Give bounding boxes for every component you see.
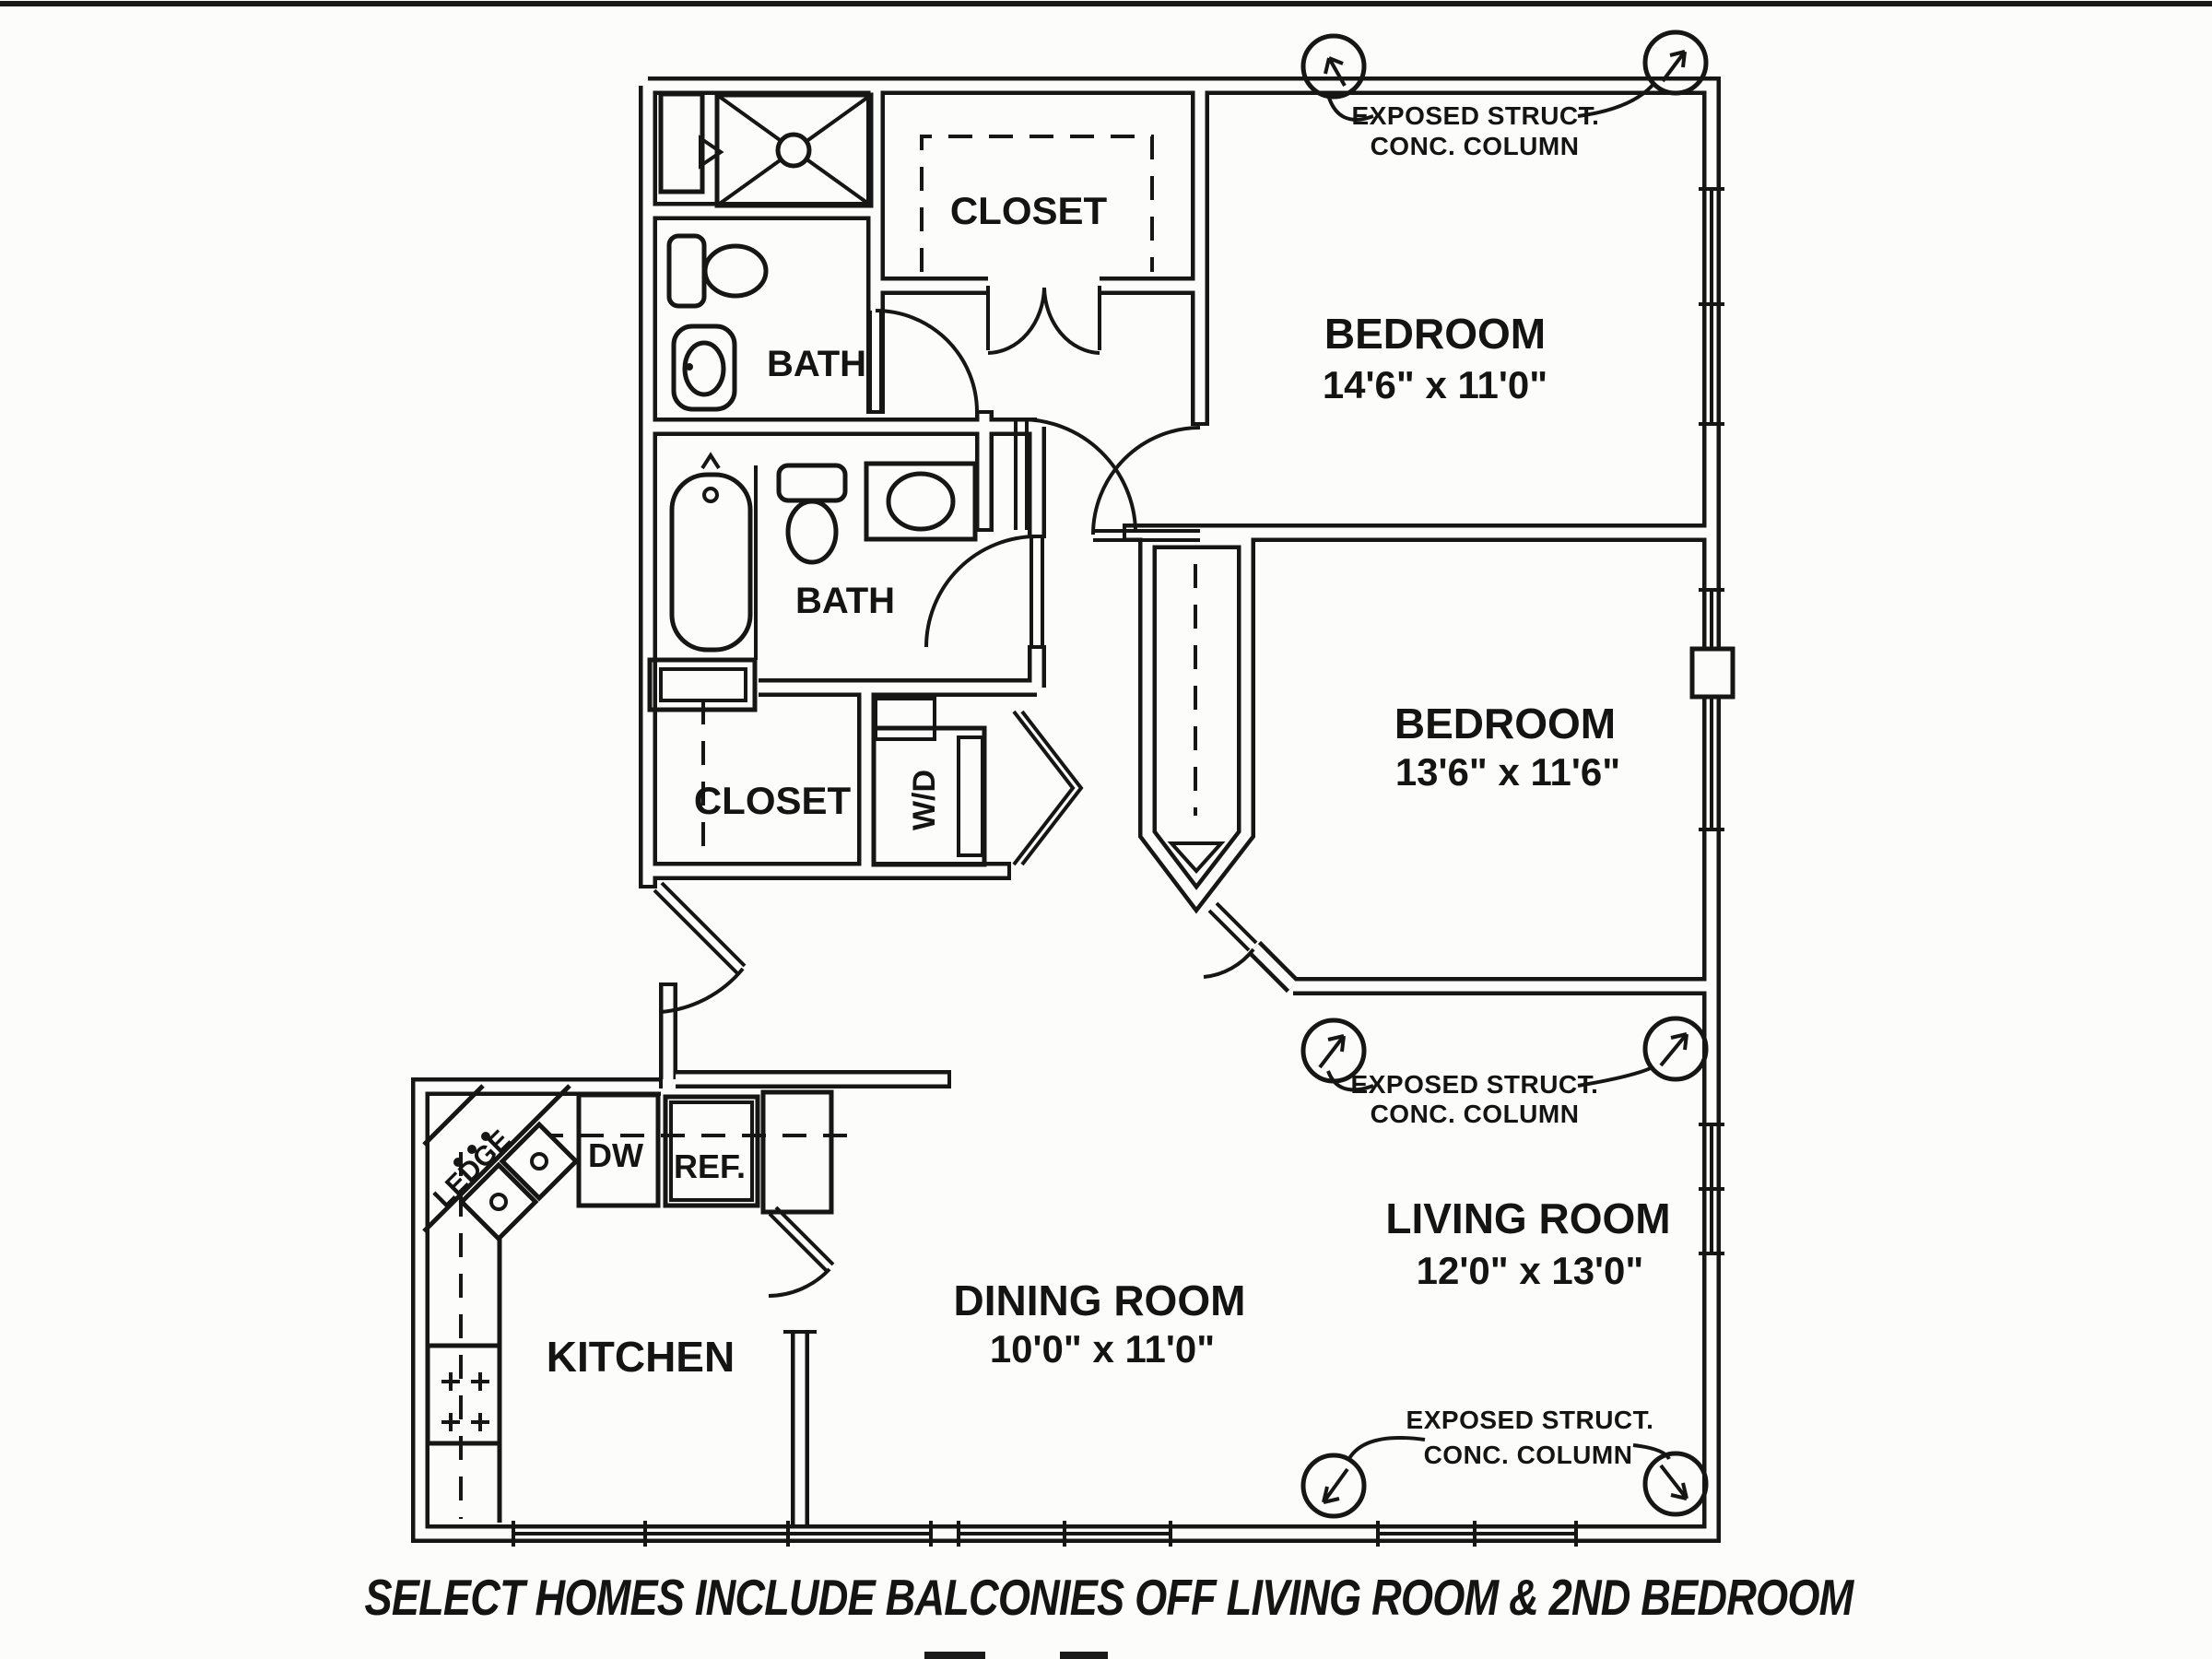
washer-dryer-label: W/D bbox=[907, 770, 942, 830]
closet-dashed-lines bbox=[703, 136, 1195, 865]
floorplan-drawing: EXPOSED STRUCT. CONC. COLUMN EXPOSED STR… bbox=[0, 0, 2212, 1659]
living-room-label: LIVING ROOM bbox=[1385, 1194, 1670, 1242]
toilet-upper-bath bbox=[669, 236, 766, 306]
floorplan-page: EXPOSED STRUCT. CONC. COLUMN EXPOSED STR… bbox=[0, 0, 2212, 1659]
column-note-bottom-line1: EXPOSED STRUCT. bbox=[1406, 1406, 1654, 1434]
lower-closet-label: CLOSET bbox=[694, 779, 852, 822]
sink-lower-bath bbox=[866, 464, 975, 539]
dining-room-label: DINING ROOM bbox=[954, 1277, 1246, 1324]
bedroom2-label: BEDROOM bbox=[1394, 700, 1616, 747]
plan-caption: SELECT HOMES INCLUDE BALCONIES OFF LIVIN… bbox=[365, 1569, 1855, 1626]
column-note-mid-line2: CONC. COLUMN bbox=[1371, 1100, 1580, 1128]
living-room-dims: 12'0" x 13'0" bbox=[1417, 1249, 1644, 1292]
sink-upper-bath bbox=[674, 326, 735, 409]
dishwasher-label: DW bbox=[588, 1136, 643, 1174]
refrigerator-label: REF. bbox=[674, 1147, 746, 1185]
room-labels: BEDROOM 14'6" x 11'0" BEDROOM 13'6" x 11… bbox=[428, 189, 1670, 1381]
bedroom2-dims: 13'6" x 11'6" bbox=[1395, 750, 1620, 794]
bedroom1-label: BEDROOM bbox=[1324, 310, 1546, 358]
toilet-lower-bath bbox=[779, 465, 845, 562]
upper-closet-label: CLOSET bbox=[950, 189, 1108, 232]
column-note-top-line1: EXPOSED STRUCT. bbox=[1352, 101, 1600, 130]
bathtub bbox=[672, 455, 756, 660]
linen-cabinet bbox=[661, 94, 702, 192]
page-edge-marks bbox=[0, 4, 2212, 1659]
kitchen-label: KITCHEN bbox=[547, 1333, 735, 1381]
column-note-bottom-line2: CONC. COLUMN bbox=[1424, 1441, 1633, 1469]
column-note-top-line2: CONC. COLUMN bbox=[1371, 132, 1580, 160]
shower bbox=[700, 95, 871, 206]
pantry-cabinet bbox=[763, 1092, 831, 1212]
upper-bath-label: BATH bbox=[767, 344, 866, 384]
cooktop bbox=[428, 1346, 500, 1443]
bedroom1-dims: 14'6" x 11'0" bbox=[1323, 363, 1547, 406]
lower-bath-label: BATH bbox=[795, 581, 895, 621]
column-note-mid-line1: EXPOSED STRUCT. bbox=[1351, 1070, 1599, 1099]
dining-room-dims: 10'0" x 11'0" bbox=[990, 1327, 1215, 1371]
